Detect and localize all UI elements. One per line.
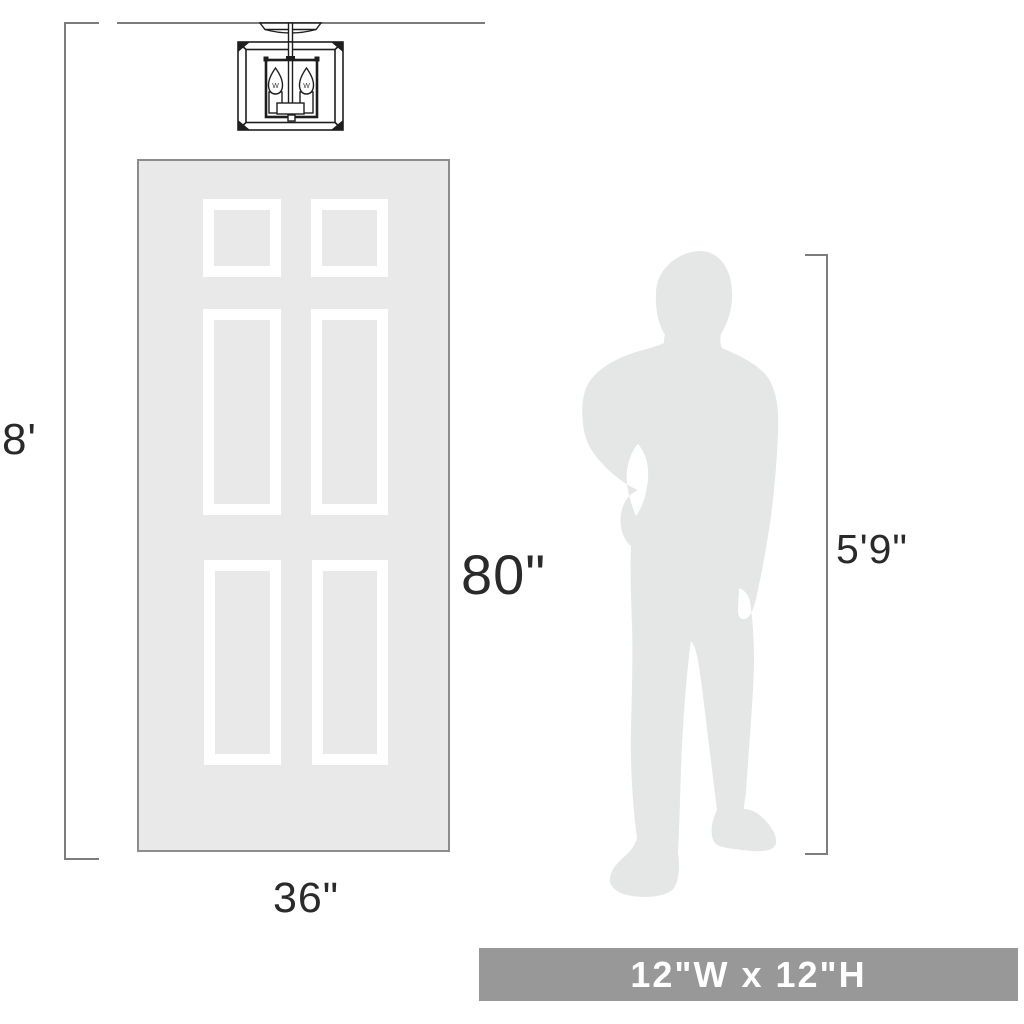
fixture-stem-collar	[286, 56, 295, 61]
door-panel	[311, 309, 388, 515]
bulb-mark-left: W	[272, 83, 279, 90]
fixture-bracket-finial-right	[315, 57, 320, 62]
fixture-bottom-finial	[288, 115, 295, 121]
ceiling-height-label: 8'	[2, 415, 37, 465]
dimension-diagram: 8' W W 80" 36" 5'9"	[0, 0, 1024, 1024]
person-silhouette	[575, 248, 781, 900]
door-width-label: 36"	[258, 874, 354, 923]
person-silhouette-shape	[582, 251, 778, 897]
door-panel	[203, 309, 281, 515]
light-fixture-drawing: W W	[230, 20, 360, 135]
size-banner-text: 12"W x 12"H	[630, 954, 866, 996]
person-height-dimension-line	[805, 254, 828, 855]
door-panel	[203, 199, 281, 277]
ceiling-height-dimension-line	[64, 22, 99, 860]
fixture-socket-block	[277, 103, 304, 114]
fixture-inner-stem	[289, 42, 293, 104]
bulb-mark-right: W	[303, 83, 310, 90]
person-height-label: 5'9"	[836, 526, 908, 573]
fixture-bracket-finial-left	[264, 57, 269, 62]
door-height-label: 80"	[461, 542, 546, 607]
door-panel	[312, 560, 388, 765]
door-panel	[311, 199, 388, 277]
door-panel	[204, 560, 281, 765]
fixture-bulb-left	[269, 68, 283, 94]
size-banner: 12"W x 12"H	[479, 948, 1018, 1001]
fixture-bulb-right	[300, 68, 314, 94]
fixture-stem	[289, 23, 293, 42]
door	[137, 159, 450, 852]
